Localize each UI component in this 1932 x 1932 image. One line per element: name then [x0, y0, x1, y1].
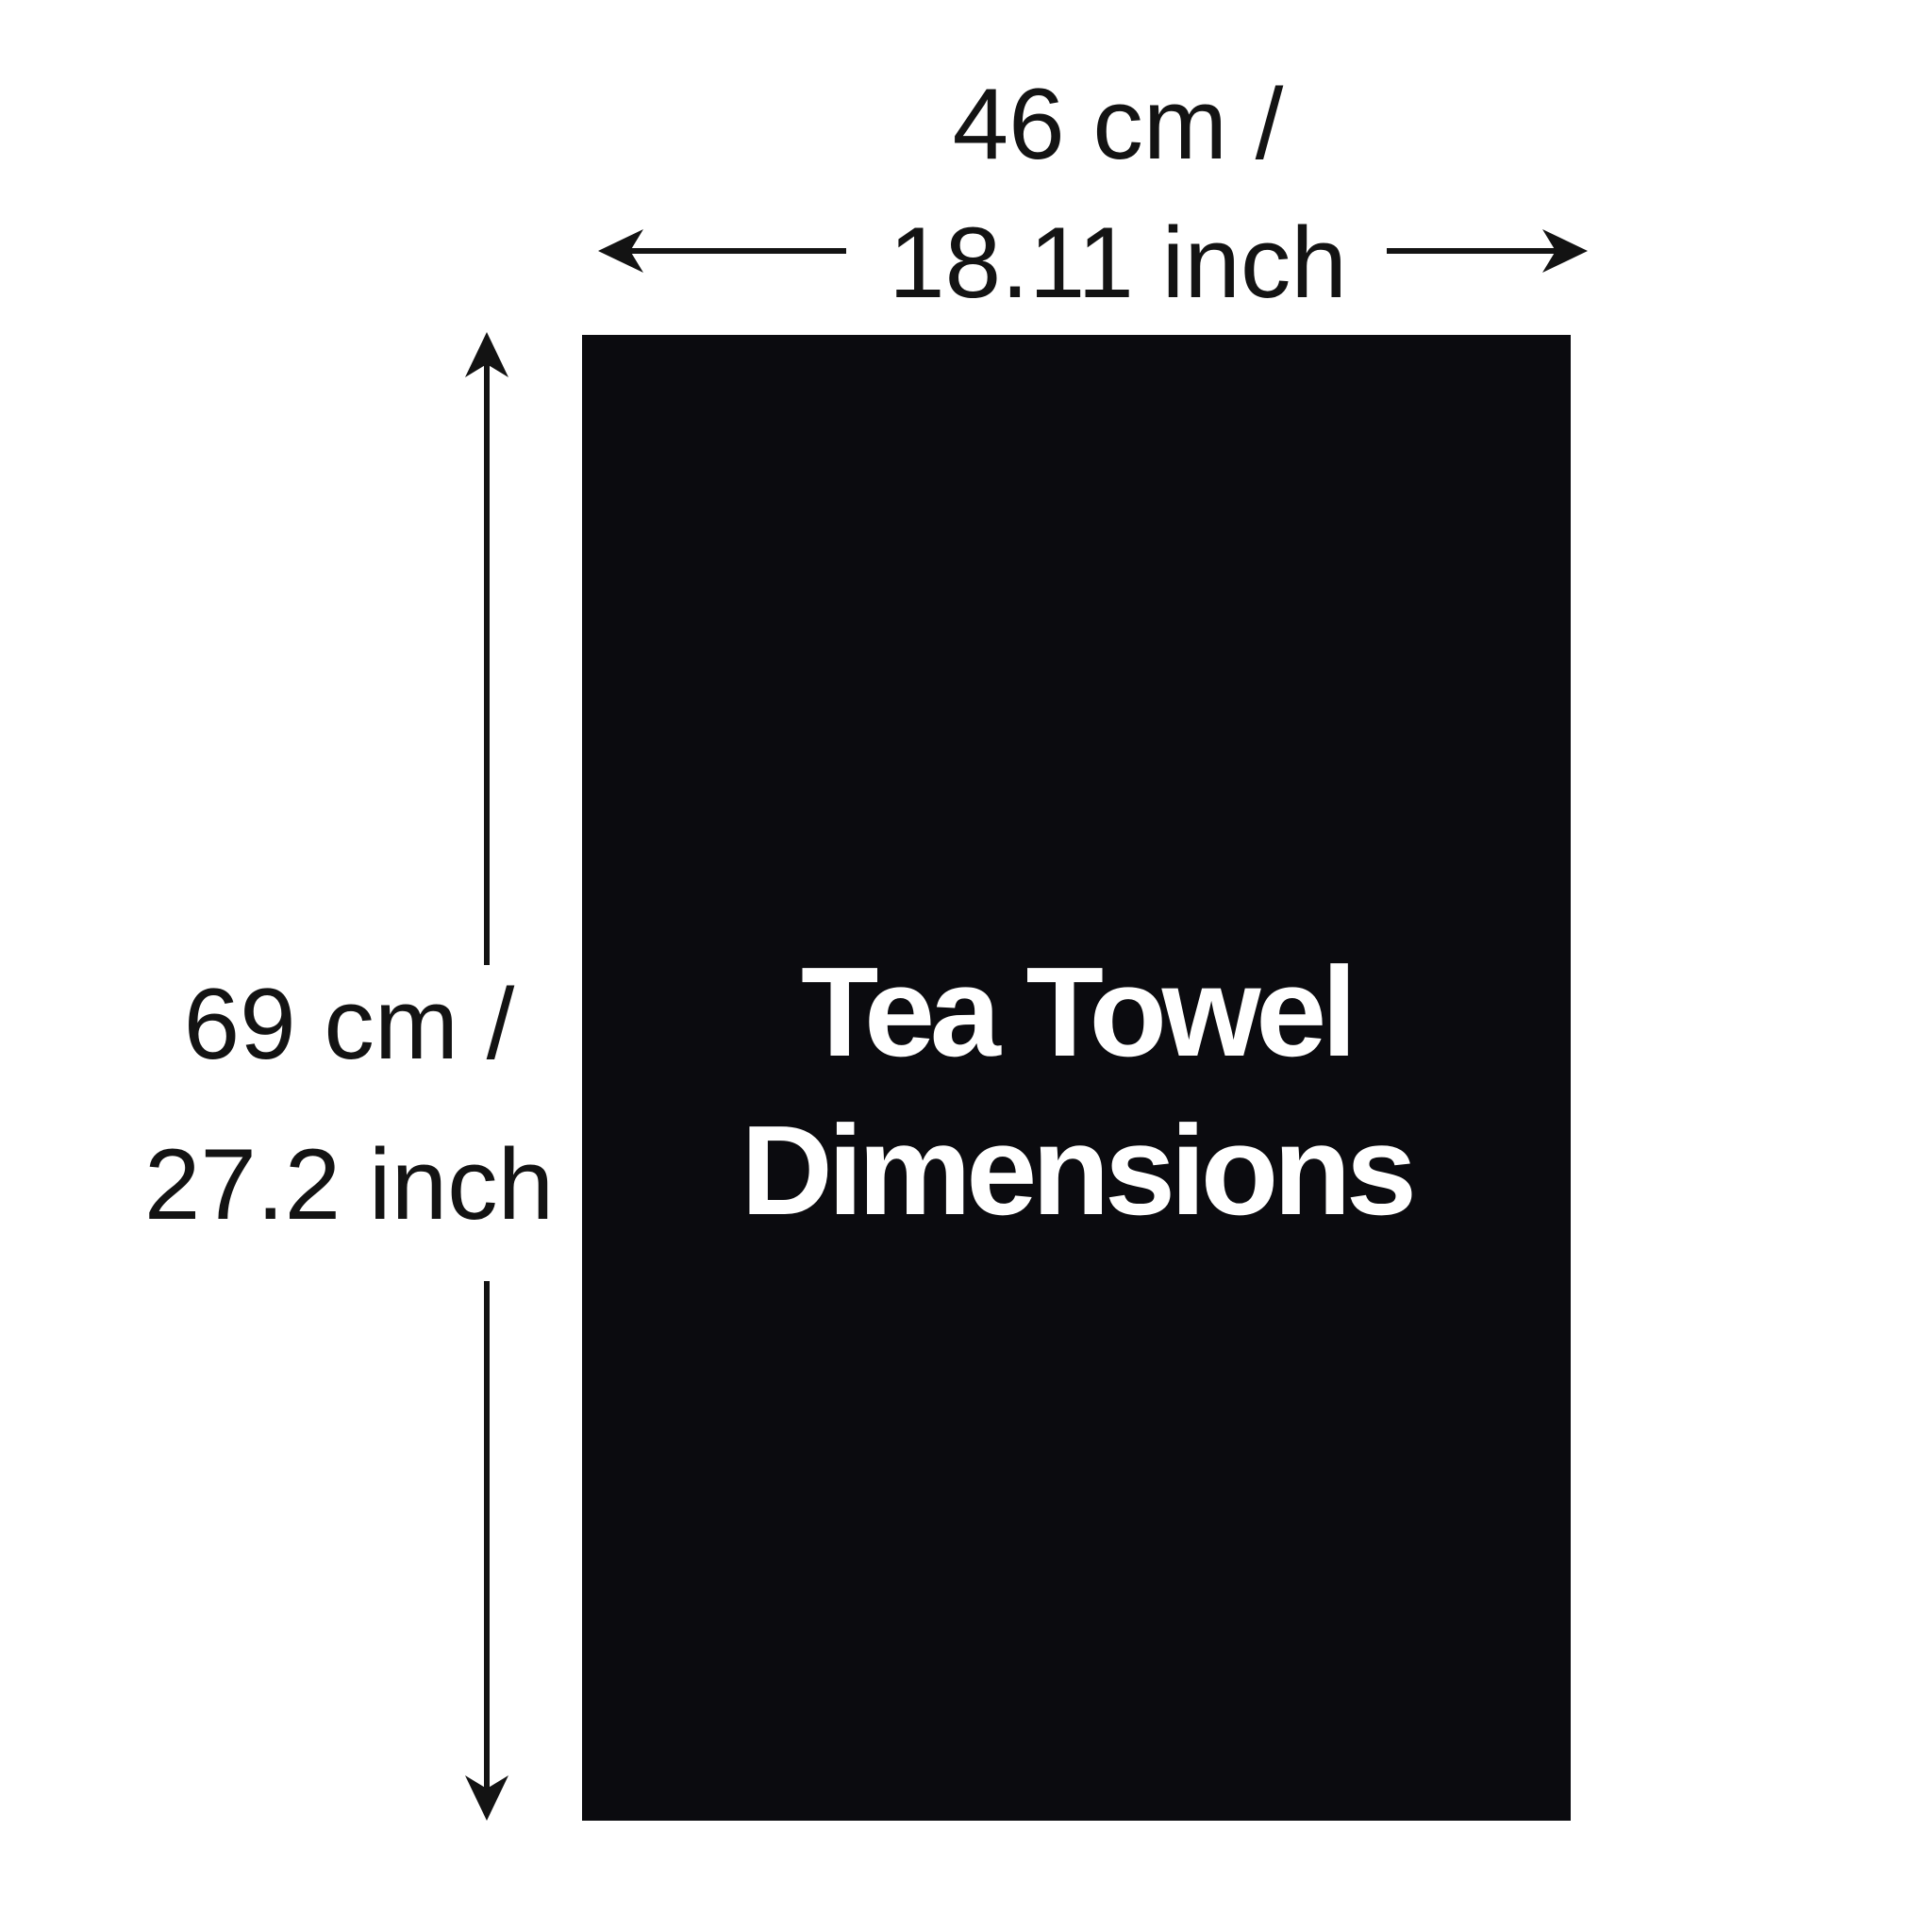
width-label-line2: 18.11 inch [889, 193, 1347, 332]
height-dimension-label: 69 cm / 27.2 inch [144, 943, 554, 1264]
width-label-line1: 46 cm / [889, 55, 1347, 193]
tea-towel-dimensions-diagram: Tea Towel Dimensions 46 cm / 18.11 inch … [0, 0, 1932, 1932]
height-label-line2: 27.2 inch [144, 1104, 554, 1264]
towel-title: Tea Towel Dimensions [741, 933, 1411, 1250]
towel-rectangle: Tea Towel Dimensions [582, 335, 1571, 1821]
towel-title-line2: Dimensions [741, 1091, 1411, 1250]
height-label-line1: 69 cm / [144, 943, 554, 1104]
towel-title-line1: Tea Towel [741, 933, 1411, 1091]
width-dimension-label: 46 cm / 18.11 inch [889, 55, 1347, 332]
